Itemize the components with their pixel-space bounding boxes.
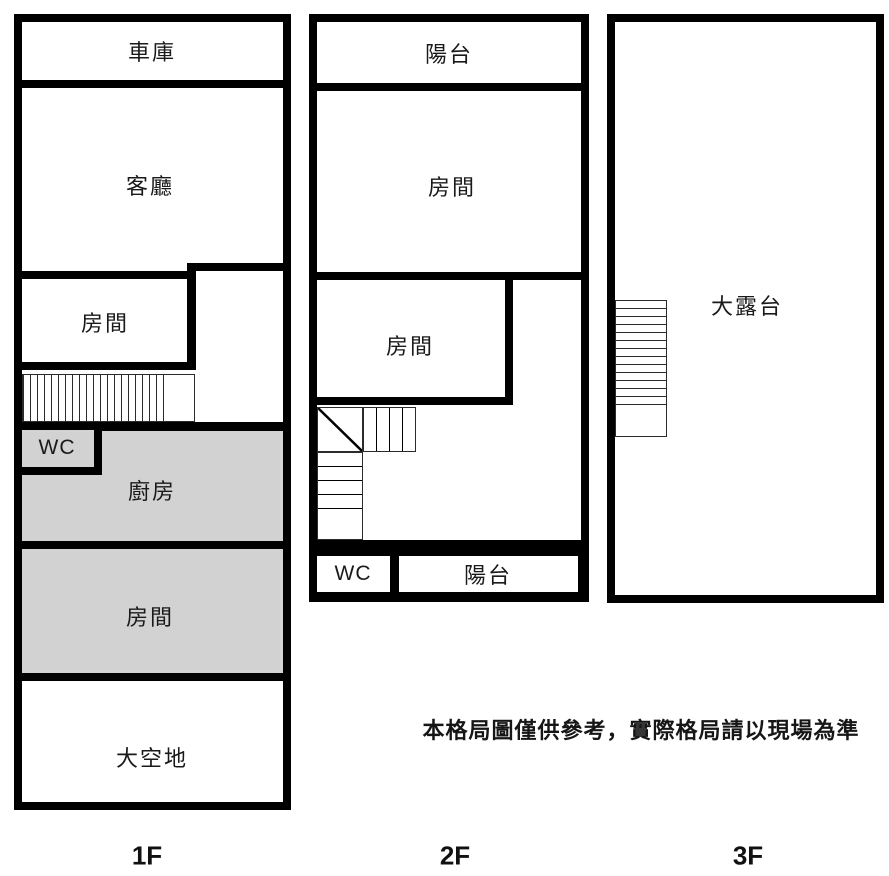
- room-label-room-lower: 房間: [126, 600, 174, 632]
- room-label-room-upper: 房間: [81, 306, 129, 338]
- room-label-wc-1f: WC: [39, 436, 76, 460]
- disclaimer-text: 本格局圖僅供參考，實際格局請以現場為準: [422, 713, 859, 745]
- stair-treads: [364, 408, 415, 451]
- stair-treads: [23, 375, 164, 421]
- stairs-2f-upper-run: [363, 407, 416, 452]
- wall: [188, 263, 291, 271]
- wall: [14, 271, 193, 279]
- wall: [14, 362, 196, 370]
- floor-label-1f: 1F: [132, 841, 162, 872]
- wall: [505, 272, 513, 405]
- room-label-garage: 車庫: [128, 35, 176, 67]
- room-label-room-front: 房間: [428, 170, 476, 202]
- stairs-1f: [22, 374, 195, 422]
- wall: [14, 80, 291, 88]
- stairs-2f-winder: [317, 407, 363, 452]
- stair-treads: [318, 453, 362, 510]
- room-label-balcony-rear: 陽台: [464, 558, 512, 590]
- room-label-wc-2f: WC: [335, 562, 372, 586]
- room-label-kitchen: 廚房: [128, 474, 176, 506]
- wall: [187, 263, 196, 370]
- room-label-open-space: 大空地: [116, 741, 188, 773]
- floor-plan-canvas: 車庫 客廳 房間 WC 廚房 房間 大空地 1F 陽: [0, 0, 889, 876]
- wall: [309, 272, 589, 280]
- stair-treads: [616, 301, 666, 407]
- floor-label-3f: 3F: [733, 841, 763, 872]
- room-label-balcony-front: 陽台: [425, 37, 473, 69]
- wall: [14, 673, 291, 681]
- room-label-living: 客廳: [126, 169, 174, 201]
- floor-label-2f: 2F: [440, 841, 470, 872]
- stair-winder-diagonal: [318, 408, 362, 451]
- stairs-2f-lower-run: [317, 452, 363, 540]
- stairs-3f: [615, 300, 667, 437]
- wall: [309, 397, 513, 405]
- wall: [14, 541, 291, 549]
- room-label-room-middle: 房間: [386, 329, 434, 361]
- wall: [309, 83, 589, 91]
- room-label-terrace: 大露台: [711, 289, 783, 321]
